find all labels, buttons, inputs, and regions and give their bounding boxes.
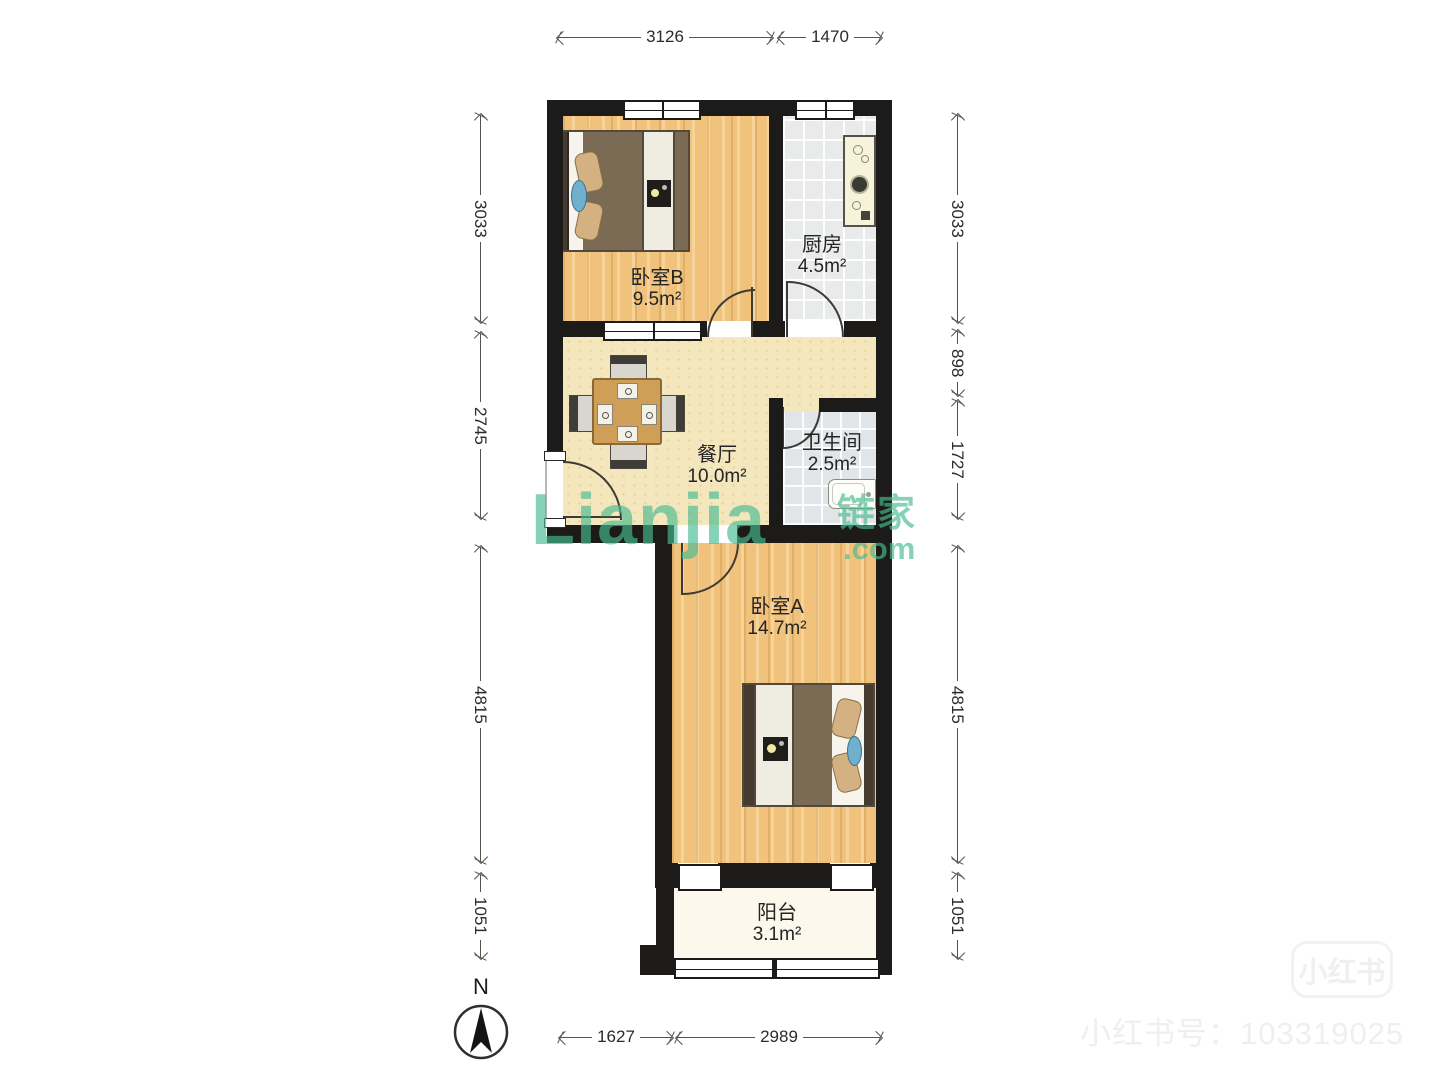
chair-back <box>676 396 684 431</box>
chair-bottom <box>610 442 647 469</box>
room-area: 2.5m² <box>802 454 862 476</box>
entrance-door-leaf <box>563 516 620 518</box>
room-area: 9.5m² <box>630 289 683 311</box>
bed-cushion <box>571 180 587 212</box>
sink-icon <box>853 145 863 155</box>
kitchen-door-leaf <box>786 281 788 337</box>
balcony-door-frame <box>830 864 874 891</box>
tv-dot <box>767 744 776 753</box>
wall <box>640 945 674 975</box>
room-label-bathroom: 卫生间 2.5m² <box>802 432 862 476</box>
dimension-left-2: 2745 <box>469 333 491 518</box>
bathtub <box>828 479 876 509</box>
dimension-left-1: 3033 <box>469 115 491 322</box>
dimension-right-4: 4815 <box>946 547 968 862</box>
dimension-top-1: 3126 <box>558 26 772 48</box>
chair-right <box>658 395 685 432</box>
entrance-jamb <box>544 451 566 461</box>
north-label: N <box>452 974 510 1000</box>
room-label-kitchen: 厨房 4.5m² <box>798 234 847 278</box>
wall <box>547 525 674 543</box>
compass-icon <box>452 1003 510 1066</box>
bed-foot <box>744 685 754 805</box>
wall <box>547 116 563 458</box>
wall <box>563 321 603 337</box>
dimension-left-3: 4815 <box>469 547 491 862</box>
tv-bedroom-a <box>763 737 788 761</box>
kitchen-counter <box>843 135 876 227</box>
window-interior <box>603 321 702 341</box>
room-name: 阳台 <box>753 902 802 924</box>
room-name: 卫生间 <box>802 432 862 454</box>
bed-cushion <box>847 736 862 766</box>
placemat <box>617 426 638 442</box>
balcony-door-frame <box>678 864 722 891</box>
room-area: 3.1m² <box>753 924 802 946</box>
entrance-threshold <box>545 458 547 519</box>
wall <box>655 863 678 888</box>
floorplan-canvas: 卧室B 9.5m² 厨房 4.5m² 餐厅 10.0m² 卫生间 2.5m² 卧… <box>0 0 1440 1080</box>
room-label-bedroom-b: 卧室B 9.5m² <box>630 267 683 311</box>
tv-bedroom-b <box>647 180 671 207</box>
room-label-dining: 餐厅 10.0m² <box>687 444 746 488</box>
wall <box>547 100 623 116</box>
room-name: 厨房 <box>798 234 847 256</box>
room-area: 4.5m² <box>798 256 847 278</box>
room-area: 10.0m² <box>687 466 746 488</box>
dimension-top-2: 1470 <box>779 26 881 48</box>
placemat <box>641 404 657 425</box>
window-balcony <box>674 958 880 979</box>
wall <box>844 321 876 337</box>
plate <box>625 388 632 395</box>
dimension-right-5: 1051 <box>946 874 968 958</box>
bathtub-inner <box>832 483 865 505</box>
dimension-right-2: 898 <box>946 331 968 395</box>
entrance-jamb <box>544 518 566 528</box>
wall <box>769 398 783 525</box>
window-kitchen <box>795 100 855 120</box>
wall <box>697 100 795 116</box>
sink-icon <box>861 155 869 163</box>
room-label-balcony: 阳台 3.1m² <box>753 902 802 946</box>
bed-bedroom-b <box>555 130 690 252</box>
wall <box>753 321 785 337</box>
room-name: 卧室A <box>747 596 806 618</box>
bed-headboard <box>862 685 873 805</box>
drain-icon <box>866 492 871 497</box>
xiaohongshu-badge: 小红书 <box>1291 941 1393 998</box>
stove-icon <box>861 211 870 220</box>
wall <box>769 116 783 321</box>
chair-back <box>570 396 578 431</box>
dimension-right-3: 1727 <box>946 401 968 518</box>
plate <box>646 412 653 419</box>
placemat <box>617 383 638 399</box>
room-area: 14.7m² <box>747 618 806 640</box>
window-bedroom-b <box>623 100 701 120</box>
plate <box>602 412 609 419</box>
xiaohongshu-id: 小红书号：103319025 <box>1080 1008 1404 1053</box>
plate <box>625 431 632 438</box>
wall <box>876 100 892 975</box>
room-name: 卧室B <box>630 267 683 289</box>
dining-table <box>592 378 662 445</box>
chair-back <box>611 356 646 364</box>
placemat <box>597 404 613 425</box>
wall <box>819 398 876 412</box>
tv-dot <box>779 741 784 746</box>
bedroom-a-door-leaf <box>681 543 683 595</box>
bed-bedroom-a <box>742 683 875 807</box>
chair-back <box>611 460 646 468</box>
dimension-bottom-2: 2989 <box>677 1026 881 1048</box>
stove-burner-icon <box>852 177 867 192</box>
room-label-bedroom-a: 卧室A 14.7m² <box>747 596 806 640</box>
faucet-icon <box>852 201 861 210</box>
tv-dot <box>651 189 659 197</box>
dimension-right-1: 3033 <box>946 115 968 322</box>
wall <box>737 525 876 543</box>
wall <box>655 543 672 888</box>
dimension-bottom-1: 1627 <box>560 1026 672 1048</box>
wall <box>718 863 830 888</box>
tv-dot <box>662 185 667 190</box>
room-name: 餐厅 <box>687 444 746 466</box>
dimension-left-4: 1051 <box>469 874 491 958</box>
